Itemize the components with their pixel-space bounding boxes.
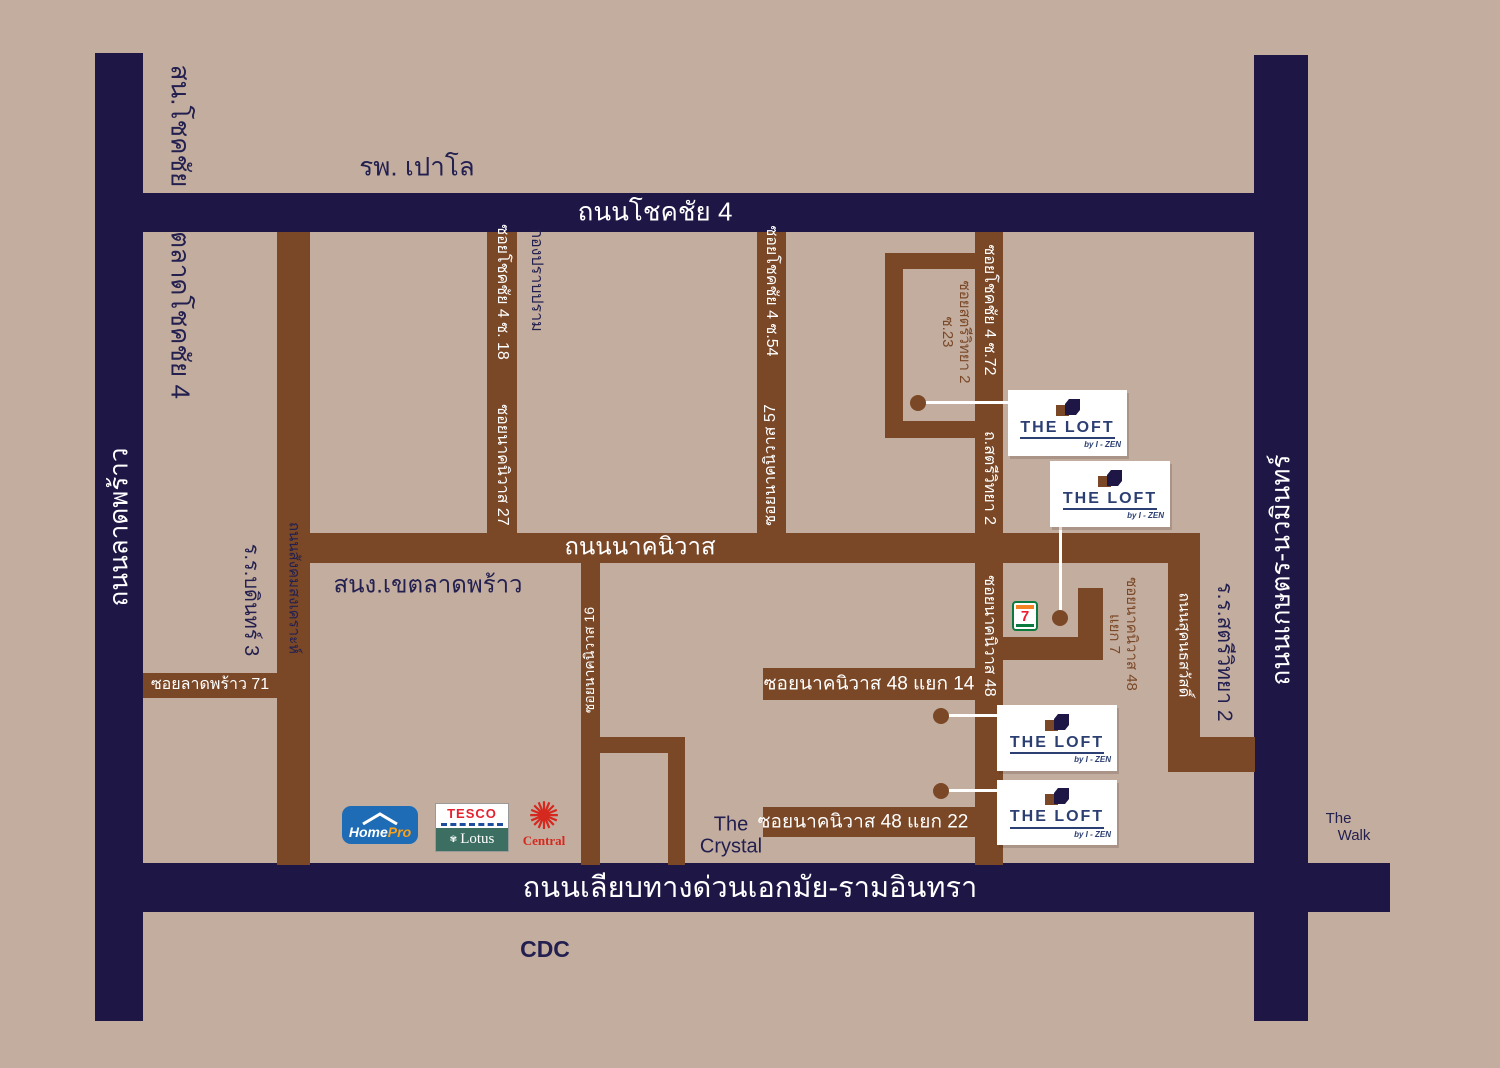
homepro-pro-text: Pro [388,824,411,840]
the-crystal-line1: The [700,814,762,836]
soi-nakniwat48-yaek7-line1: ซอยนาคนิวาส 48 [1122,577,1139,691]
seven-eleven-digit: 7 [1014,608,1036,625]
loft-byline: by I - ZEN [1084,440,1121,449]
road-label-soi-satriwitthaya2-23: ซอยสตรีวิทยา 2 ซ.23 [938,281,972,384]
police-station-label: สน.โชคชัย [165,65,194,188]
seven-eleven-logo: 7 [1012,601,1038,631]
loft-byline: by I - ZEN [1074,755,1111,764]
the-walk-line1: The [1326,811,1371,828]
connector-loft1 [922,401,1010,404]
road-soi-satriwitthaya2-23-left [885,253,903,438]
road-label-sangkhomsongkhro: ถนนสังคมสงเคราะห์ [285,522,302,654]
loft-house-icon [1097,468,1123,488]
lotus-text: Lotus [460,831,494,848]
loft-box-1: THE LOFT by I - ZEN [1008,390,1127,456]
road-sukhonthasawat-h [1168,737,1255,772]
road-label-ladprao: ถนนลาดพร้าว [104,447,133,606]
loft-title: THE LOFT [1020,419,1114,440]
satriwitthaya2-school-label: ร.ร.สตรีวิทยา 2 [1212,582,1236,721]
road-label-soi-ladprao71: ซอยลาดพร้าว 71 [151,676,269,694]
road-label-nakniwat: ถนนนาคนิวาส [564,535,715,562]
connector-loft2 [1059,527,1062,619]
central-text: Central [523,834,566,847]
connector-loft3 [945,714,997,717]
loft-byline: by I - ZEN [1127,511,1164,520]
road-soi-nakniwat48-yaek7-v [1078,588,1103,660]
loft1-location-dot [910,395,926,411]
loft2-location-dot [1052,610,1068,626]
road-label-soi-chokchai4-72: ซอยโชคชัย 4 ซ.72 [980,244,998,375]
ladprao-district-office-label: สนง.เขตลาดพร้าว [333,573,522,600]
road-soi-nakniwat16-branch-v [668,737,685,865]
talad-chokchai4-label: ตลาดโชคชัย 4 [165,231,194,399]
location-map: ถนนโชคชัย 4 ถนนลาดพร้าว ถนนเกษตร-นวมินทร… [0,0,1500,1068]
soi-nakniwat48-yaek7-line2: แยก 7 [1105,577,1122,691]
seven-eleven-green-stripe [1016,624,1034,627]
the-crystal-label: The Crystal [700,814,762,859]
tesco-lotus-logo: TESCO ✾Lotus [435,803,509,852]
bodin3-school-label: ร.ร.บดินทร์ 3 [240,544,262,657]
road-label-ekamai-ramindra: ถนนเลียบทางด่วนเอกมัย-รามอินทรา [523,872,978,904]
road-soi-satriwitthaya2-23-bottom [885,421,981,438]
road-label-soi-chokchai4-18: ซอยโชคชัย 4 ซ. 18 [493,224,511,360]
road-label-soi-nakniwat27: ซอยนาคนิวาส 27 [493,404,511,525]
loft3-location-dot [933,708,949,724]
lotus-flower-icon: ✾ [450,834,458,845]
road-label-soi-nakniwat16: ซอยนาคนิวาส 16 [582,607,598,713]
road-label-sukhonthasawat: ถนนสุคนธสวัสดิ์ [1175,593,1192,698]
loft-title: THE LOFT [1010,808,1104,829]
soi-satriwitthaya2-23-line1: ซอยสตรีวิทยา 2 [955,281,972,384]
loft4-location-dot [933,783,949,799]
road-label-soi-nakniwat48-yaek22: ซอยนาคนิวาส 48 แยก 22 [758,811,969,832]
central-flower-icon: ✺ [528,800,560,834]
loft-house-icon [1055,397,1081,417]
loft-title: THE LOFT [1063,490,1157,511]
soi-satriwitthaya2-23-line2: ซ.23 [938,281,955,384]
connector-loft4 [945,789,997,792]
loft-house-icon [1044,712,1070,732]
the-walk-line2: Walk [1338,828,1371,845]
central-logo: ✺ Central [519,800,569,855]
cdc-label: CDC [520,937,570,963]
loft-box-2: THE LOFT by I - ZEN [1050,461,1170,527]
loft-box-3: THE LOFT by I - ZEN [997,705,1117,771]
homepro-logo: HomePro [342,806,418,844]
road-label-soi-nakniwat48-yaek14: ซอยนาคนิวาส 48 แยก 14 [764,673,975,694]
tesco-text: TESCO [447,806,497,822]
the-walk-label: The Walk [1326,811,1371,845]
tesco-dashes [441,823,502,826]
loft-byline: by I - ZEN [1074,830,1111,839]
loft-house-icon [1044,786,1070,806]
road-label-th-satriwitthaya2: ถ.สตรีวิทยา 2 [980,431,998,525]
road-label-soi-nakniwat57: ซอยนาคนิวาส 57 [762,404,780,525]
road-label-soi-nakniwat48-yaek7: ซอยนาคนิวาส 48 แยก 7 [1105,577,1139,691]
paolo-hospital-label: รพ. เปาโล [359,152,474,181]
homepro-home-text: Home [349,824,388,840]
road-label-chokchai4: ถนนโชคชัย 4 [578,197,733,226]
loft-box-4: THE LOFT by I - ZEN [997,780,1117,845]
road-label-soi-chokchai4-54: ซอยโชคชัย 4 ซ.54 [762,225,780,356]
road-label-soi-nakniwat48: ซอยนาคนิวาส 48 [980,575,998,696]
crime-suppression-label: กองปราบปราม [527,228,545,331]
the-crystal-line2: Crystal [700,836,762,858]
road-label-kaset-nawamin: ถนนเกษตร-นวมินทร์ [1266,455,1295,686]
loft-title: THE LOFT [1010,734,1104,755]
